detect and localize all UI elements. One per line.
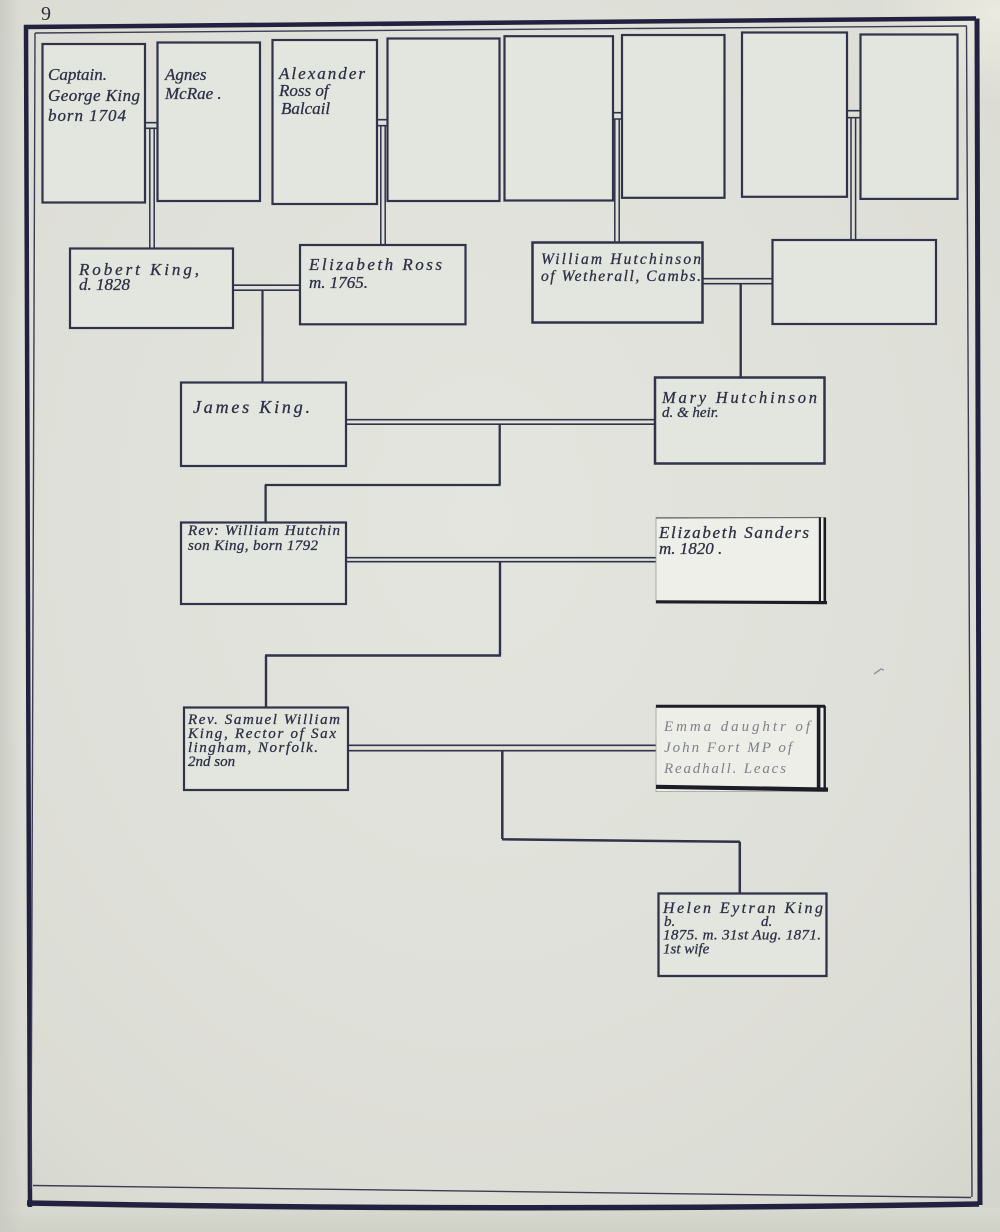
svg-text:9: 9 [41, 3, 51, 25]
svg-text:Ross of: Ross of [278, 81, 331, 100]
svg-text:Rev: William Hutchin: Rev: William Hutchin [187, 523, 340, 539]
svg-text:Helen Eytran King: Helen Eytran King [662, 900, 823, 917]
svg-text:born 1704: born 1704 [48, 106, 127, 125]
svg-text:Captain.: Captain. [48, 65, 107, 84]
svg-text:of Wetherall, Cambs.: of Wetherall, Cambs. [541, 268, 701, 285]
svg-text:Balcail: Balcail [281, 99, 330, 118]
svg-text:John Fort MP of: John Fort MP of [664, 740, 794, 756]
svg-text:McRae .: McRae . [164, 84, 222, 103]
svg-text:George King: George King [48, 86, 140, 105]
svg-text:2nd son: 2nd son [188, 754, 235, 770]
svg-text:Agnes: Agnes [164, 65, 207, 84]
svg-text:Emma daughtr of: Emma daughtr of [663, 719, 812, 735]
svg-text:d. 1828: d. 1828 [79, 275, 131, 294]
svg-text:d. & heir.: d. & heir. [662, 405, 719, 421]
svg-text:m. 1820 .: m. 1820 . [659, 539, 722, 558]
svg-text:1st wife: 1st wife [663, 942, 710, 958]
svg-text:William Hutchinson: William Hutchinson [541, 251, 701, 268]
svg-text:Readhall. Leacs: Readhall. Leacs [663, 761, 786, 777]
svg-text:m. 1765.: m. 1765. [309, 273, 368, 292]
svg-text:son King, born 1792: son King, born 1792 [188, 538, 319, 554]
